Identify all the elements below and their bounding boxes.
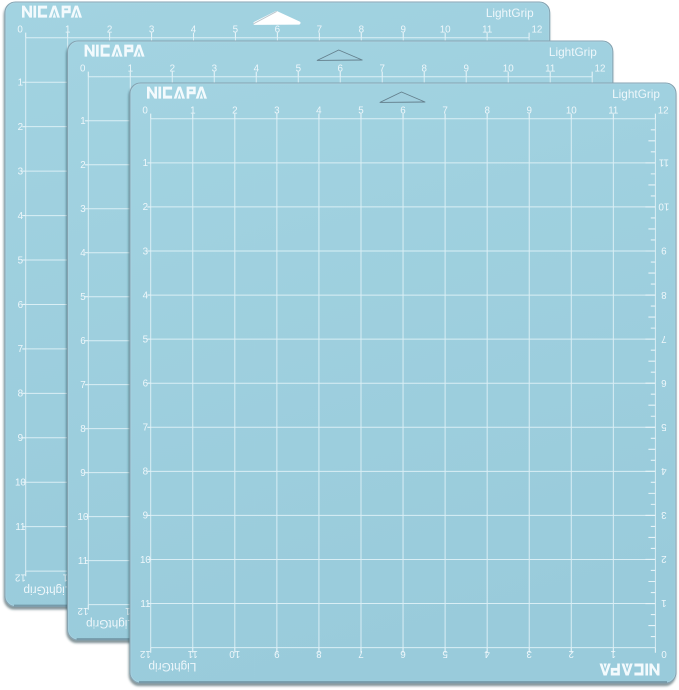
svg-text:5: 5 — [233, 25, 239, 36]
svg-text:1: 1 — [80, 116, 85, 127]
svg-text:11: 11 — [545, 64, 555, 75]
svg-text:3: 3 — [18, 166, 24, 177]
svg-text:3: 3 — [143, 246, 149, 257]
svg-text:6: 6 — [400, 106, 406, 117]
svg-text:1: 1 — [143, 158, 148, 169]
svg-text:2: 2 — [170, 64, 175, 75]
svg-text:6: 6 — [143, 379, 149, 390]
svg-text:4: 4 — [143, 290, 149, 301]
svg-text:8: 8 — [143, 467, 149, 478]
svg-text:10: 10 — [229, 648, 240, 659]
svg-text:12: 12 — [531, 25, 542, 36]
svg-text:10: 10 — [78, 512, 89, 523]
svg-text:6: 6 — [80, 336, 86, 347]
svg-text:11: 11 — [78, 556, 88, 567]
svg-text:9: 9 — [18, 433, 23, 444]
svg-text:2: 2 — [232, 106, 237, 117]
svg-text:7: 7 — [379, 64, 384, 75]
svg-text:8: 8 — [18, 389, 24, 400]
svg-text:2: 2 — [80, 160, 85, 171]
svg-text:3: 3 — [274, 106, 280, 117]
svg-text:8: 8 — [421, 64, 427, 75]
svg-text:3: 3 — [149, 25, 155, 36]
svg-text:9: 9 — [274, 648, 279, 659]
svg-text:4: 4 — [254, 64, 260, 75]
svg-text:2: 2 — [569, 648, 574, 659]
svg-text:7: 7 — [18, 344, 23, 355]
svg-text:LightGrip: LightGrip — [23, 584, 71, 598]
svg-text:1: 1 — [611, 648, 616, 659]
svg-text:8: 8 — [661, 289, 667, 300]
svg-text:1: 1 — [190, 106, 195, 117]
svg-text:7: 7 — [80, 380, 85, 391]
svg-text:4: 4 — [661, 465, 667, 476]
svg-text:5: 5 — [80, 292, 86, 303]
svg-text:7: 7 — [442, 106, 447, 117]
svg-text:9: 9 — [463, 64, 468, 75]
svg-text:LightGrip: LightGrip — [612, 87, 660, 101]
svg-text:2: 2 — [661, 553, 666, 564]
svg-text:1: 1 — [128, 64, 133, 75]
svg-text:5: 5 — [661, 421, 667, 432]
svg-text:11: 11 — [140, 599, 150, 610]
svg-text:3: 3 — [80, 204, 86, 215]
svg-text:11: 11 — [188, 648, 198, 659]
svg-text:6: 6 — [661, 377, 667, 388]
svg-text:10: 10 — [658, 201, 669, 212]
svg-text:LightGrip: LightGrip — [486, 6, 534, 20]
svg-text:4: 4 — [80, 248, 86, 259]
svg-text:9: 9 — [143, 511, 148, 522]
svg-text:3: 3 — [212, 64, 218, 75]
svg-text:1: 1 — [18, 78, 23, 89]
svg-text:3: 3 — [526, 648, 532, 659]
svg-text:8: 8 — [80, 424, 86, 435]
svg-text:11: 11 — [608, 106, 618, 117]
svg-text:8: 8 — [316, 648, 322, 659]
svg-text:2: 2 — [18, 122, 23, 133]
svg-text:12: 12 — [15, 571, 26, 582]
svg-text:11: 11 — [482, 25, 492, 36]
svg-text:10: 10 — [566, 106, 577, 117]
svg-text:7: 7 — [317, 25, 322, 36]
svg-text:12: 12 — [595, 64, 606, 75]
svg-text:6: 6 — [18, 300, 24, 311]
svg-text:0: 0 — [17, 25, 23, 36]
svg-text:7: 7 — [358, 648, 363, 659]
svg-text:4: 4 — [316, 106, 322, 117]
svg-text:2: 2 — [107, 25, 112, 36]
svg-text:5: 5 — [358, 106, 364, 117]
svg-text:6: 6 — [400, 648, 406, 659]
svg-text:5: 5 — [18, 255, 24, 266]
svg-text:8: 8 — [484, 106, 490, 117]
svg-text:11: 11 — [659, 157, 669, 168]
svg-text:4: 4 — [191, 25, 197, 36]
svg-text:8: 8 — [359, 25, 365, 36]
svg-text:10: 10 — [440, 25, 451, 36]
svg-text:4: 4 — [484, 648, 490, 659]
svg-text:11: 11 — [15, 522, 25, 533]
svg-text:7: 7 — [661, 333, 666, 344]
svg-text:9: 9 — [400, 25, 405, 36]
svg-text:LightGrip: LightGrip — [86, 617, 134, 631]
svg-text:12: 12 — [658, 106, 669, 117]
svg-text:LightGrip: LightGrip — [148, 660, 196, 674]
svg-text:0: 0 — [80, 64, 86, 75]
svg-text:0: 0 — [661, 648, 667, 659]
svg-text:12: 12 — [140, 648, 151, 659]
svg-text:1: 1 — [661, 597, 666, 608]
svg-text:7: 7 — [143, 423, 148, 434]
svg-text:10: 10 — [140, 555, 151, 566]
svg-text:0: 0 — [142, 106, 148, 117]
svg-text:10: 10 — [15, 478, 26, 489]
svg-text:5: 5 — [296, 64, 302, 75]
svg-text:LightGrip: LightGrip — [549, 45, 597, 59]
svg-text:4: 4 — [18, 211, 24, 222]
svg-text:1: 1 — [65, 25, 70, 36]
svg-text:9: 9 — [526, 106, 531, 117]
svg-text:3: 3 — [661, 509, 667, 520]
svg-text:5: 5 — [442, 648, 448, 659]
svg-text:9: 9 — [80, 468, 85, 479]
svg-text:2: 2 — [143, 202, 148, 213]
svg-text:12: 12 — [78, 605, 89, 616]
svg-text:6: 6 — [337, 64, 343, 75]
svg-text:10: 10 — [503, 64, 514, 75]
svg-text:9: 9 — [661, 245, 666, 256]
svg-text:6: 6 — [275, 25, 281, 36]
svg-text:5: 5 — [143, 334, 149, 345]
